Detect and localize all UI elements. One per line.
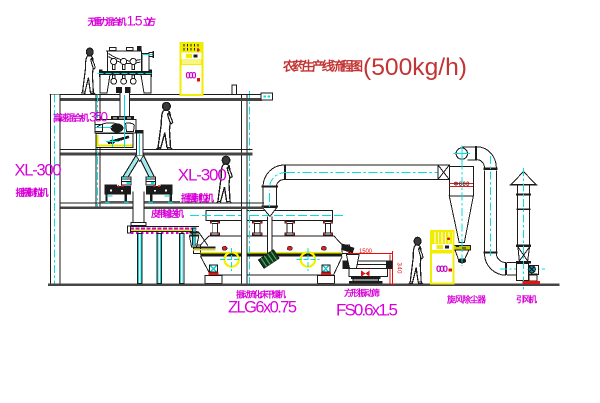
svg-text:FS0.6x1.5: FS0.6x1.5 [336,301,398,320]
svg-text:摇摆制粒机: 摇摆制粒机 [181,193,214,205]
svg-text:1500: 1500 [359,249,373,255]
svg-text:340: 340 [396,263,402,275]
svg-text:高速混合机: 高速混合机 [53,112,89,123]
svg-text:引风机: 引风机 [516,295,537,305]
svg-text:1.5: 1.5 [127,13,143,29]
svg-text:立方: 立方 [143,16,156,27]
svg-text:000: 000 [436,264,448,275]
svg-text:旋风除尘器: 旋风除尘器 [446,295,486,305]
svg-text:方形振动筛: 方形振动筛 [344,288,380,298]
svg-text:摇摆制粒机: 摇摆制粒机 [16,187,49,199]
svg-text:农药生产线流程图: 农药生产线流程图 [282,59,363,74]
svg-text:ZLG6x0.75: ZLG6x0.75 [228,299,297,317]
svg-text:000: 000 [186,71,197,81]
svg-text:(500kg/h): (500kg/h) [363,54,467,81]
svg-text:皮带输送机: 皮带输送机 [150,208,184,219]
svg-text:350: 350 [89,110,108,125]
svg-text:无重力混合机: 无重力混合机 [87,16,127,27]
svg-text:XL-300: XL-300 [178,166,227,185]
svg-text:XL-300: XL-300 [15,162,62,180]
